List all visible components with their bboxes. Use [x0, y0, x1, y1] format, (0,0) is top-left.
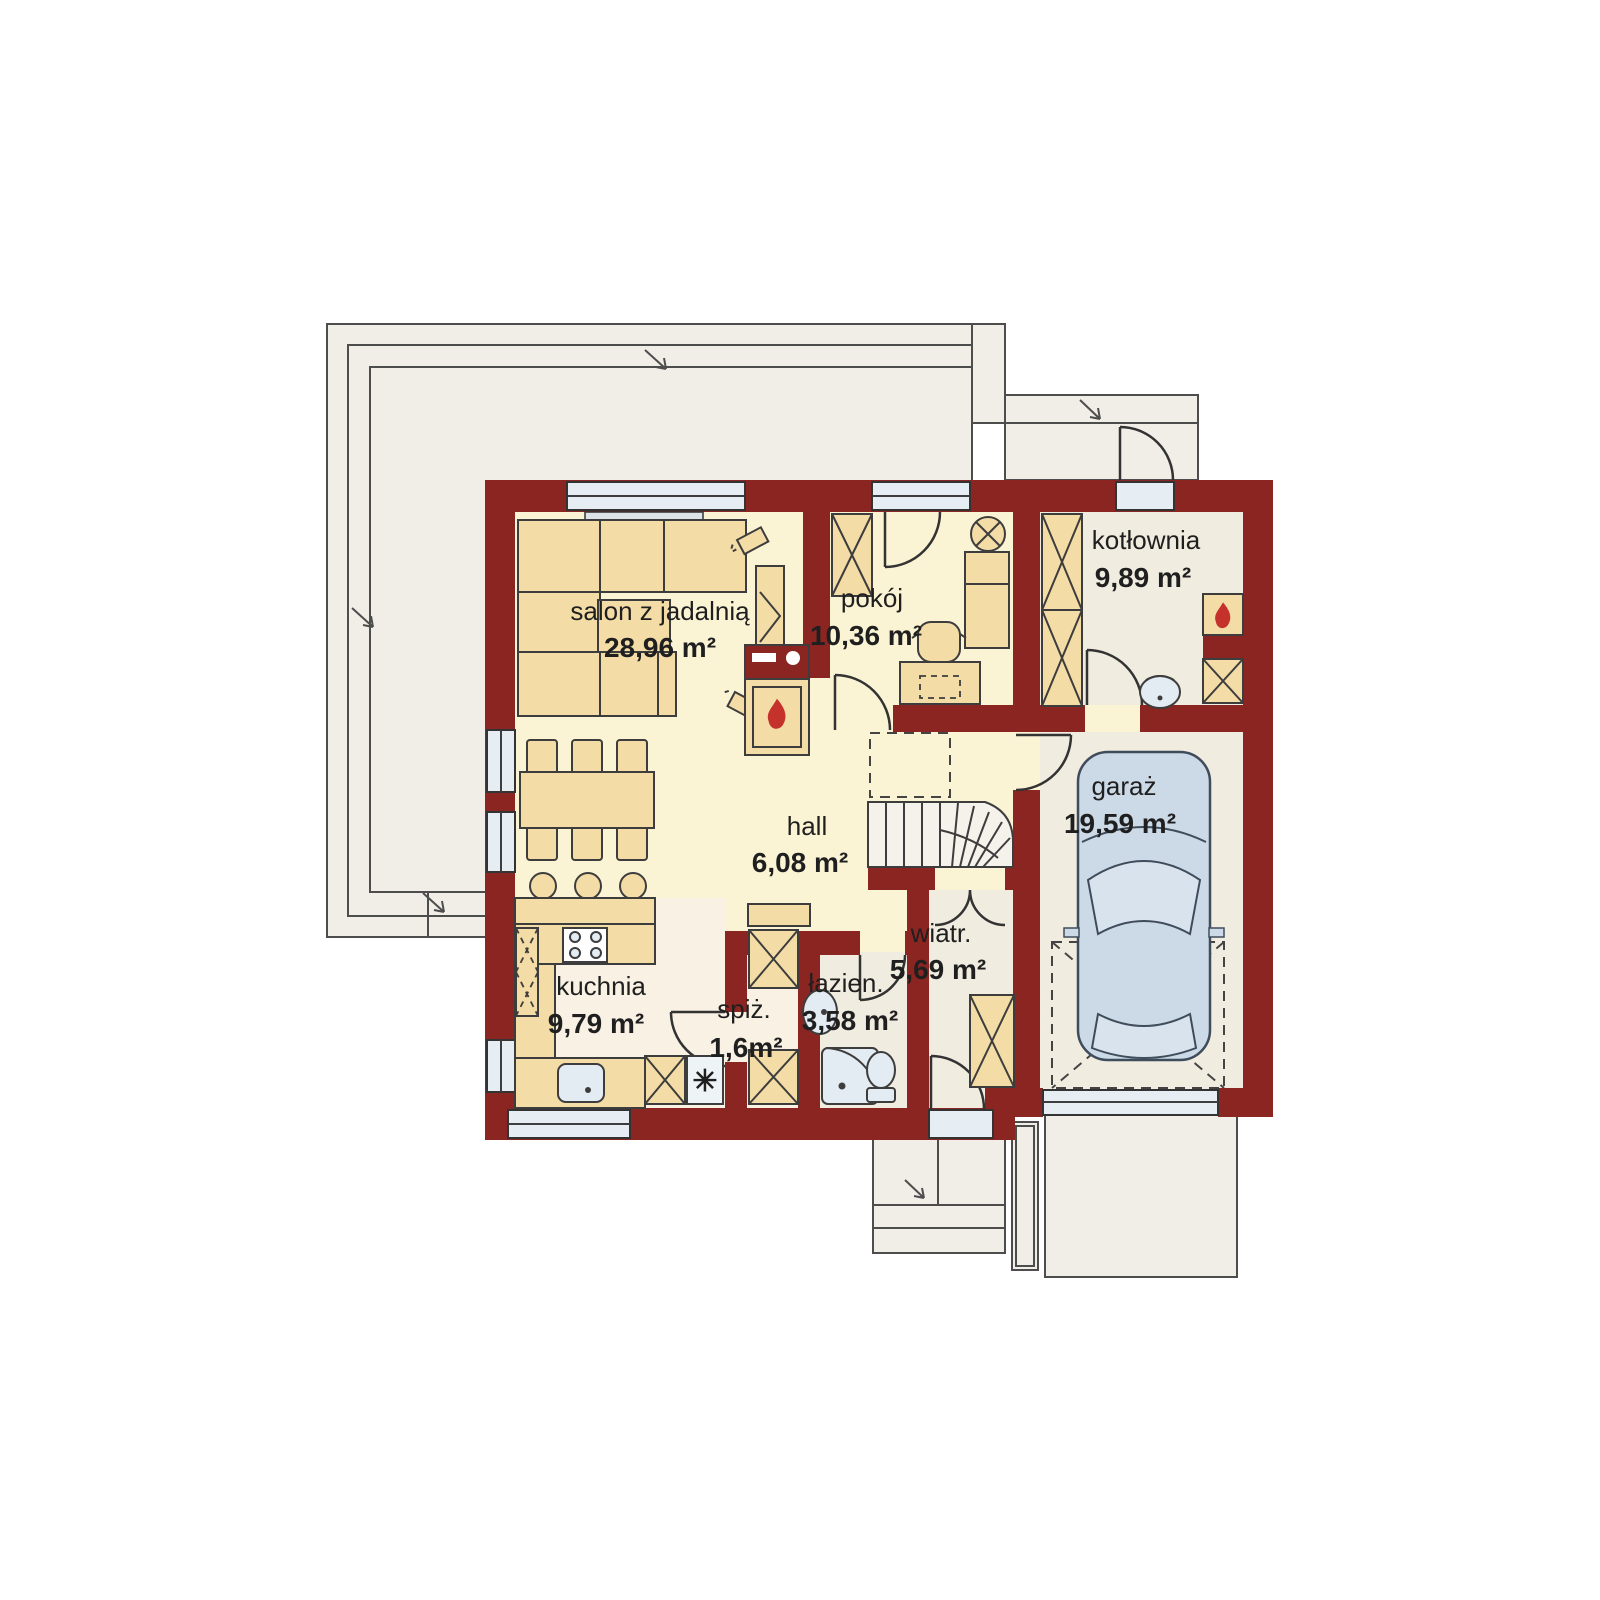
utility-sink-icon: [1140, 676, 1180, 708]
wardrobe: [1042, 514, 1082, 706]
room-area-kotlownia: 9,89 m²: [1095, 562, 1192, 593]
lamp-icon: [971, 517, 1005, 551]
porch-pillar: [1012, 1122, 1038, 1270]
fireplace: [745, 645, 809, 755]
sideboard: [748, 904, 810, 926]
room-label-kotlownia: kotłownia: [1092, 525, 1201, 555]
room-area-pokoj: 10,36 m²: [810, 620, 922, 651]
room-area-lazienka: 3,58 m²: [802, 1005, 899, 1036]
driveway: [1045, 1092, 1237, 1277]
boiler-icon: [1203, 594, 1243, 635]
room-area-wiatr: 5,69 m²: [890, 954, 987, 985]
room-area-salon: 28,96 m²: [604, 632, 716, 663]
room-label-spiz: spiż.: [717, 994, 770, 1024]
kitchen-side-window: [487, 1040, 515, 1092]
entrance-door-sill: [929, 1110, 993, 1138]
floor-plan-canvas: ✳: [0, 0, 1600, 1600]
cooktop-icon: [563, 928, 607, 962]
cabinet: [645, 1056, 685, 1104]
kotlownia-door-sill: [1116, 482, 1174, 510]
toilet-icon: [867, 1052, 895, 1102]
wardrobe: [749, 930, 798, 988]
bar-stool: [530, 873, 556, 899]
cabinet: [1203, 659, 1243, 703]
breakfast-bar: [515, 898, 655, 924]
room-label-salon: salon z jadalnią: [570, 596, 750, 626]
room-label-wiatr: wiatr.: [910, 918, 972, 948]
freezer-icon: ✳: [687, 1056, 723, 1104]
room-label-hall: hall: [787, 811, 827, 841]
garage-contents: [1052, 752, 1224, 1088]
salon-side-window: [487, 812, 515, 872]
kitchen-bottom-window: [508, 1110, 630, 1138]
dining-set: [520, 740, 654, 860]
room-label-lazienka: łazien.: [808, 968, 883, 998]
bar-stool: [620, 873, 646, 899]
room-area-hall: 6,08 m²: [752, 847, 849, 878]
kitchen-sink-icon: [558, 1064, 604, 1102]
room-label-kuchnia: kuchnia: [556, 971, 646, 1001]
svg-text:✳: ✳: [692, 1065, 717, 1098]
dining-table: [520, 772, 654, 828]
room-area-kuchnia: 9,79 m²: [548, 1008, 645, 1039]
room-area-garaz: 19,59 m²: [1064, 808, 1176, 839]
room-label-garaz: garaż: [1091, 771, 1156, 801]
room-area-spiz: 1,6m²: [709, 1032, 782, 1063]
desk: [900, 662, 980, 704]
salon-side-window: [487, 730, 515, 792]
bed: [965, 552, 1009, 648]
pokoj-terrace-door-glazing: [872, 482, 970, 510]
north-porch: [972, 324, 1198, 480]
garage-gate: [1043, 1090, 1218, 1115]
floor-plan: ✳: [0, 0, 1600, 1600]
entry-wardrobe: [970, 995, 1014, 1087]
bar-stool: [575, 873, 601, 899]
tall-cabinet: [516, 928, 538, 1016]
room-label-pokoj: pokój: [841, 583, 903, 613]
